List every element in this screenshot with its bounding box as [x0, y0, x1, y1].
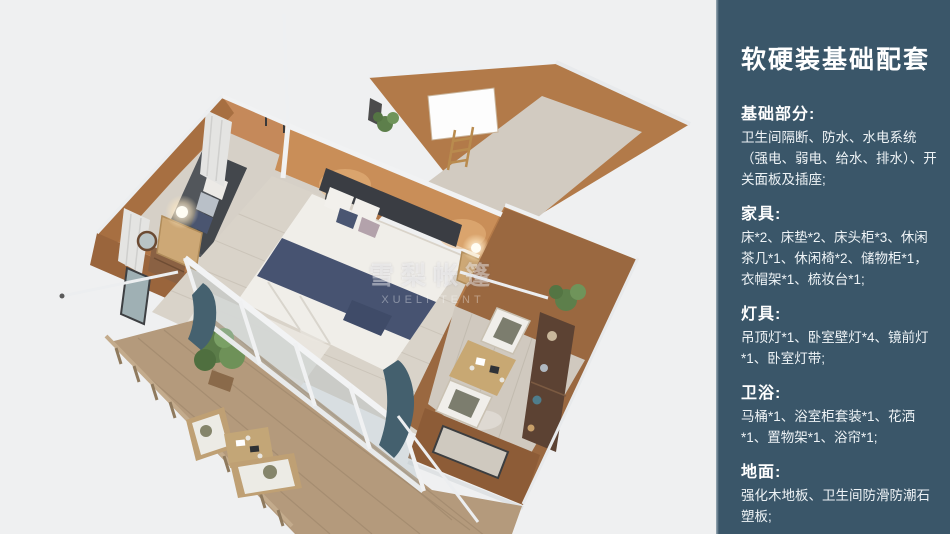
- round-mirror-icon: [138, 232, 156, 250]
- bowl-icon: [540, 364, 548, 372]
- panel-title: 软硬装基础配套: [741, 40, 936, 76]
- section-body: 床*2、床垫*2、床头柜*3、休闲茶几*1、休闲椅*2、储物柜*1，衣帽架*1、…: [741, 227, 939, 290]
- vase-icon: [533, 396, 542, 405]
- section-heading: 卫浴:: [741, 379, 936, 403]
- section-heading: 地面:: [741, 458, 936, 482]
- section-body: 卫生间隔断、防水、水电系统（强电、弱电、给水、排水）、开关面板及插座;: [741, 127, 939, 190]
- spec-panel: 软硬装基础配套 基础部分: 卫生间隔断、防水、水电系统（强电、弱电、给水、排水）…: [716, 0, 950, 534]
- spec-section-furniture: 家具: 床*2、床垫*2、床头柜*3、休闲茶几*1、休闲椅*2、储物柜*1，衣帽…: [741, 200, 936, 290]
- spec-section-flooring: 地面: 强化木地板、卫生间防滑防潮石塑板;: [741, 458, 936, 527]
- section-heading: 家具:: [741, 200, 936, 224]
- lounger-pillow: [200, 425, 212, 437]
- section-body: 吊顶灯*1、卧室壁灯*4、镜前灯*1、卧室灯带;: [741, 327, 939, 369]
- spec-section-basics: 基础部分: 卫生间隔断、防水、水电系统（强电、弱电、给水、排水）、开关面板及插座…: [741, 100, 936, 190]
- table-lamp: [471, 243, 481, 253]
- table-lamp: [176, 206, 188, 218]
- spec-section-lighting: 灯具: 吊顶灯*1、卧室壁灯*4、镜前灯*1、卧室灯带;: [741, 300, 936, 369]
- dressing-mirror: [121, 268, 150, 324]
- section-heading: 基础部分:: [741, 100, 936, 124]
- basket-icon: [547, 331, 557, 341]
- section-body: 强化木地板、卫生间防滑防潮石塑板;: [741, 485, 939, 527]
- bathroom-window: [428, 88, 498, 140]
- pole-tip: [60, 294, 65, 299]
- slide: 雪梨帐篷 XUELI TENT 软硬装基础配套 基础部分: 卫生间隔断、防水、水…: [0, 0, 950, 534]
- section-body: 马桶*1、浴室柜套装*1、花洒*1、置物架*1、浴帘*1;: [741, 406, 939, 448]
- jar-icon: [528, 425, 535, 432]
- section-heading: 灯具:: [741, 300, 936, 324]
- lounger-pillow: [263, 465, 277, 479]
- spec-section-bathroom: 卫浴: 马桶*1、浴室柜套装*1、花洒*1、置物架*1、浴帘*1;: [741, 379, 936, 448]
- isometric-house-svg: [0, 0, 716, 534]
- paper-icon: [236, 439, 246, 446]
- tray-icon: [250, 445, 260, 452]
- floorplan-render: 雪梨帐篷 XUELI TENT: [0, 0, 716, 534]
